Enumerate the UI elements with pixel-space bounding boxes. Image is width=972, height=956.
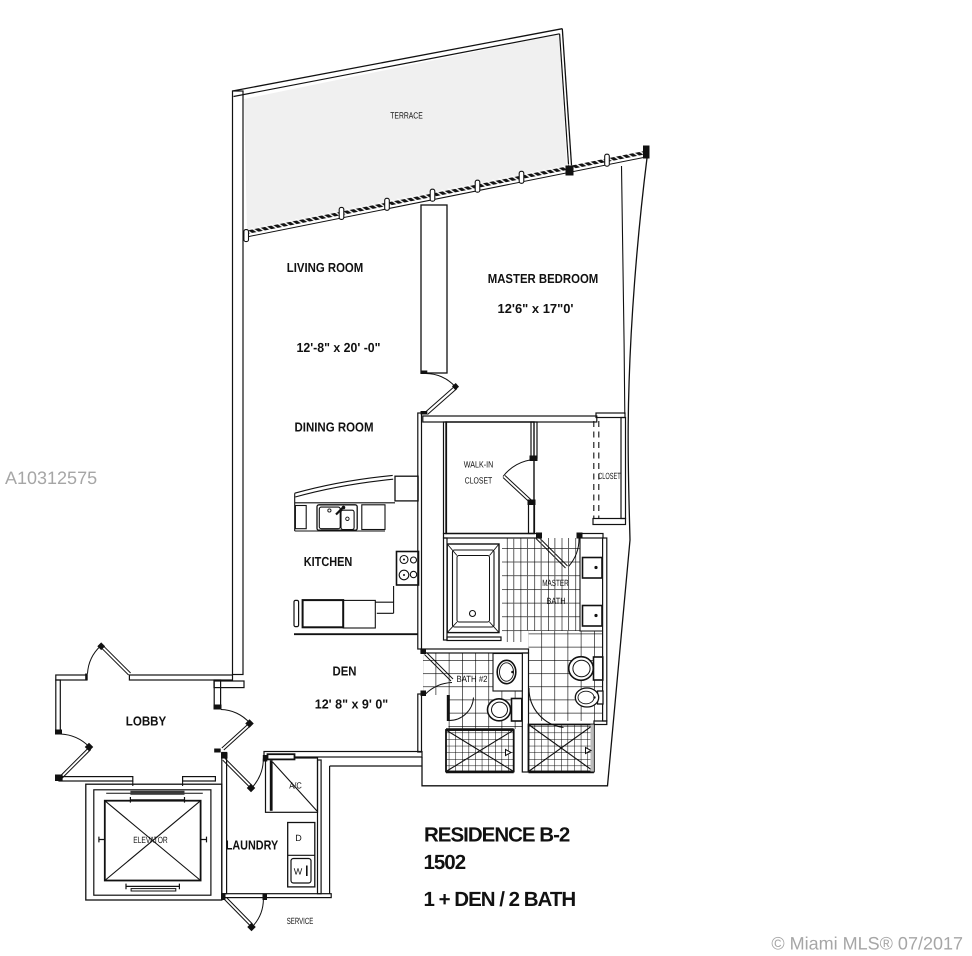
svg-text:LOBBY: LOBBY [126,714,167,729]
svg-text:12'6" x 17"0': 12'6" x 17"0' [498,301,574,316]
svg-text:W: W [294,867,303,877]
svg-text:MASTER: MASTER [542,578,569,588]
svg-text:KITCHEN: KITCHEN [304,554,353,569]
svg-text:A10312575: A10312575 [5,468,97,488]
svg-text:LIVING ROOM: LIVING ROOM [287,260,364,275]
svg-text:SERVICE: SERVICE [287,916,314,926]
svg-text:CLOSET: CLOSET [598,471,621,481]
svg-text:BATH: BATH [547,596,566,606]
svg-text:DEN: DEN [333,664,357,679]
svg-text:TERRACE: TERRACE [390,111,423,121]
svg-text:1502: 1502 [424,851,466,874]
svg-text:1 + DEN / 2 BATH: 1 + DEN / 2 BATH [424,888,576,911]
svg-text:LAUNDRY: LAUNDRY [226,838,279,853]
svg-text:BATH #2: BATH #2 [457,674,488,684]
svg-text:MASTER BEDROOM: MASTER BEDROOM [488,271,599,286]
svg-text:ELEVATOR: ELEVATOR [133,835,168,845]
svg-text:12' 8" x 9' 0": 12' 8" x 9' 0" [315,697,389,712]
svg-text:D: D [295,833,302,843]
svg-text:WALK-IN: WALK-IN [464,460,494,470]
svg-text:A/C: A/C [289,781,302,791]
svg-text:DINING ROOM: DINING ROOM [295,420,374,435]
svg-text:CLOSET: CLOSET [465,476,493,486]
svg-text:© Miami MLS® 07/2017: © Miami MLS® 07/2017 [771,934,963,954]
svg-text:RESIDENCE B-2: RESIDENCE B-2 [424,824,570,847]
svg-text:12'-8" x 20' -0": 12'-8" x 20' -0" [297,340,381,355]
